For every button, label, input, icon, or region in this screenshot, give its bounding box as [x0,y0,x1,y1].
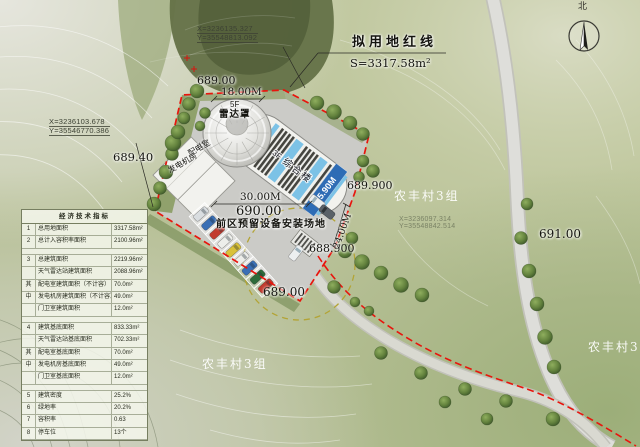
table-row: 门卫室建筑面积12.0m² [22,304,147,316]
table-row: 其配电室基底面积70.0m² [22,348,147,360]
site-plan-canvas: 3F 综合楼 15.90M [0,0,640,447]
tree-icon [355,255,370,270]
tree-icon [327,105,342,120]
table-row: 3总建筑面积2219.96m² [22,255,147,267]
tree-icon [357,155,369,167]
village-label: 农丰村3组 [394,190,460,203]
coordinate-label-top: X=3236135.327 Y=35548813.092 [197,25,258,43]
dimension-label-18m: 18.00M [221,87,262,98]
tree-icon [394,278,409,293]
tree-icon [147,197,161,211]
tree-icon [178,112,190,124]
tree-icon [439,396,451,408]
tree-icon [521,198,533,210]
coordinate-label-east: X=3236097.314 Y=35548842.514 [399,216,455,231]
coordinate-y: Y=35548842.514 [399,223,455,230]
tree-icon [343,116,357,130]
dome-label: 雷达罩 [219,110,251,120]
table-row: 4建筑基底面积833.33m² [22,323,147,335]
table-row: 天气雷达站基底面积702.33m² [22,335,147,347]
tree-icon [364,306,374,316]
elevation-label: 691.00 [539,228,581,241]
tree-icon [530,297,544,311]
tree-icon [459,383,472,396]
tree-icon [171,125,185,139]
elevation-label: 689.900 [347,180,393,192]
table-row: 中发电机房基底面积49.0m² [22,360,147,372]
tree-icon [481,413,493,425]
economic-indicator-table: 经济技术指标 1总用地面积3317.58m²2总计入容积率面积2100.96m²… [21,209,148,441]
coordinate-y: Y=35546770.386 [49,127,110,136]
coordinate-label-west: X=3236103.678 Y=35546770.386 [49,118,110,136]
table-row: 2总计入容积率面积2100.96m² [22,236,147,248]
elevation-label: 689.00 [263,286,305,299]
redline-title: 拟用地红线 [352,36,437,50]
table-row: 7容积率0.63 [22,415,147,427]
reserved-area-note: 前区预留设备安装场地 [216,220,326,231]
tree-icon [375,347,388,360]
redline-area: S=3317.58m² [350,57,431,69]
tree-icon [195,121,205,131]
village-label: 农丰村3组 [202,358,268,371]
tree-icon [415,367,428,380]
table-row: 8停车位13个 [22,428,147,440]
dimension-label-30m: 30.00M [240,192,281,203]
tree-icon [350,297,360,307]
tree-icon [515,232,528,245]
tree-icon [546,412,560,426]
table-row: 其配电室建筑面积（不计容）70.0m² [22,280,147,292]
tree-icon [538,330,553,345]
tree-icon [154,182,167,195]
table-row: 5建筑密度25.2% [22,391,147,403]
tree-icon [357,128,370,141]
coordinate-y: Y=35548813.092 [197,34,258,43]
village-label: 农丰村3组 [588,341,640,354]
tree-icon [374,266,388,280]
tree-icon [500,395,513,408]
elevation-label: 689.00 [197,75,236,87]
north-arrow-icon [569,21,599,51]
tree-icon [183,98,196,111]
tree-icon [522,264,536,278]
elevation-label: 689.40 [113,151,153,163]
tree-icon [310,96,324,110]
table-row: 6绿地率20.2% [22,403,147,415]
coordinate-x: X=3236097.314 [399,216,455,223]
tree-icon [415,288,429,302]
table-row: 1总用地面积3317.58m² [22,224,147,236]
elevation-label: 690.00 [236,205,282,219]
tree-icon [367,165,380,178]
table-row: 门卫室基底面积12.0m² [22,372,147,384]
north-label: 北 [578,2,587,11]
table-title: 经济技术指标 [22,210,147,224]
table-row: 天气雷达站建筑面积2088.96m² [22,267,147,279]
tree-icon [547,360,561,374]
table-row: 中发电机房建筑面积（不计容）49.0m² [22,292,147,304]
tree-icon [200,108,211,119]
tree-icon [328,281,341,294]
